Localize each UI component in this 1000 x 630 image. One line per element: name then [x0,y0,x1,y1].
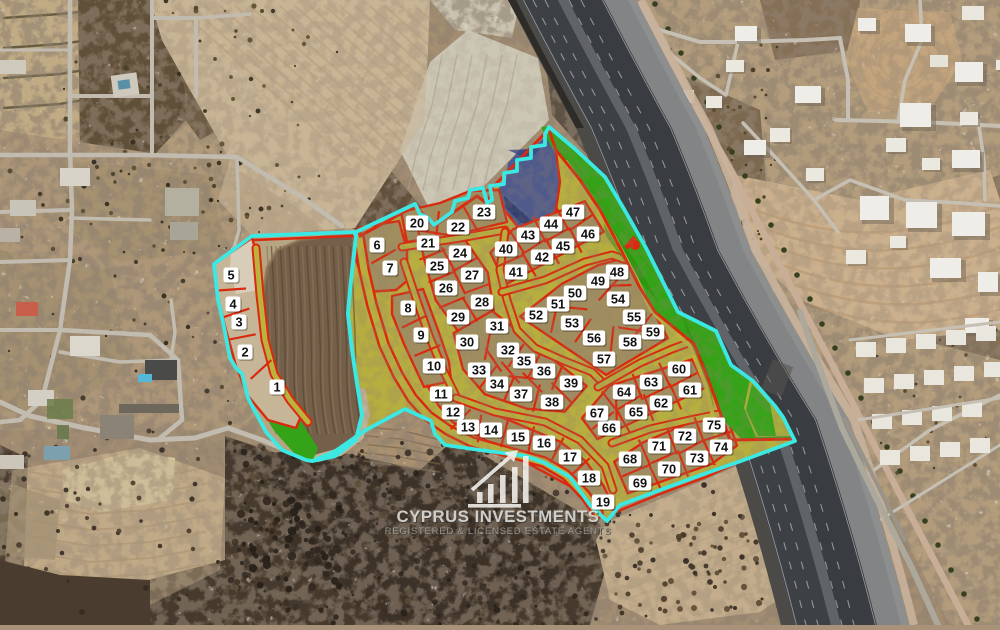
svg-text:54: 54 [611,292,626,307]
svg-text:30: 30 [460,335,474,350]
svg-text:23: 23 [477,205,491,220]
svg-text:9: 9 [417,328,424,343]
svg-text:55: 55 [627,310,641,325]
svg-text:48: 48 [610,265,624,280]
svg-text:62: 62 [654,396,668,411]
svg-text:33: 33 [472,363,486,378]
svg-text:66: 66 [602,421,616,436]
svg-text:74: 74 [714,440,729,455]
svg-text:6: 6 [373,238,380,253]
svg-text:52: 52 [529,308,543,323]
svg-text:15: 15 [511,430,525,445]
svg-text:3: 3 [235,315,242,330]
svg-text:61: 61 [683,383,697,398]
svg-text:56: 56 [587,331,601,346]
svg-text:5: 5 [227,268,234,283]
svg-text:25: 25 [430,259,444,274]
svg-text:17: 17 [563,450,577,465]
svg-text:46: 46 [581,227,595,242]
svg-text:67: 67 [590,406,604,421]
svg-text:REGISTERED & LICENSED ESTATE A: REGISTERED & LICENSED ESTATE AGENTS [385,526,612,537]
svg-text:58: 58 [623,335,637,350]
svg-text:11: 11 [434,387,448,402]
svg-text:29: 29 [451,310,465,325]
svg-text:49: 49 [591,274,605,289]
svg-text:44: 44 [544,217,559,232]
svg-text:24: 24 [453,246,468,261]
svg-text:39: 39 [564,376,578,391]
svg-text:22: 22 [451,220,465,235]
svg-text:51: 51 [551,297,565,312]
svg-text:41: 41 [509,265,523,280]
svg-text:64: 64 [617,385,632,400]
svg-text:60: 60 [672,362,686,377]
svg-text:47: 47 [566,205,580,220]
svg-text:21: 21 [421,236,435,251]
svg-text:72: 72 [678,429,692,444]
svg-text:4: 4 [229,297,237,312]
svg-text:40: 40 [499,242,513,257]
svg-text:59: 59 [646,325,660,340]
svg-text:75: 75 [707,418,721,433]
svg-text:65: 65 [629,405,643,420]
svg-text:37: 37 [514,387,528,402]
svg-text:68: 68 [623,452,637,467]
svg-text:43: 43 [521,228,535,243]
svg-text:28: 28 [475,295,489,310]
svg-text:45: 45 [556,239,570,254]
svg-text:27: 27 [465,268,479,283]
svg-text:18: 18 [582,471,596,486]
svg-text:16: 16 [537,436,551,451]
svg-text:53: 53 [565,316,579,331]
svg-text:63: 63 [644,375,658,390]
svg-text:38: 38 [545,395,559,410]
svg-text:36: 36 [537,364,551,379]
svg-text:1: 1 [273,380,280,395]
svg-text:14: 14 [484,423,499,438]
svg-text:69: 69 [633,476,647,491]
svg-text:13: 13 [461,420,475,435]
svg-text:71: 71 [652,439,666,454]
svg-text:2: 2 [241,345,248,360]
svg-text:57: 57 [597,352,611,367]
svg-text:8: 8 [404,301,411,316]
svg-text:31: 31 [490,319,504,334]
svg-text:34: 34 [490,377,505,392]
svg-text:50: 50 [568,286,582,301]
svg-text:73: 73 [690,451,704,466]
svg-text:70: 70 [662,462,676,477]
svg-text:10: 10 [427,359,441,374]
svg-text:CYPRUS INVESTMENTS: CYPRUS INVESTMENTS [397,507,600,526]
svg-text:7: 7 [386,261,393,276]
svg-text:12: 12 [446,405,460,420]
svg-text:42: 42 [535,250,549,265]
svg-text:20: 20 [410,216,424,231]
svg-text:35: 35 [517,354,531,369]
svg-text:26: 26 [439,281,453,296]
